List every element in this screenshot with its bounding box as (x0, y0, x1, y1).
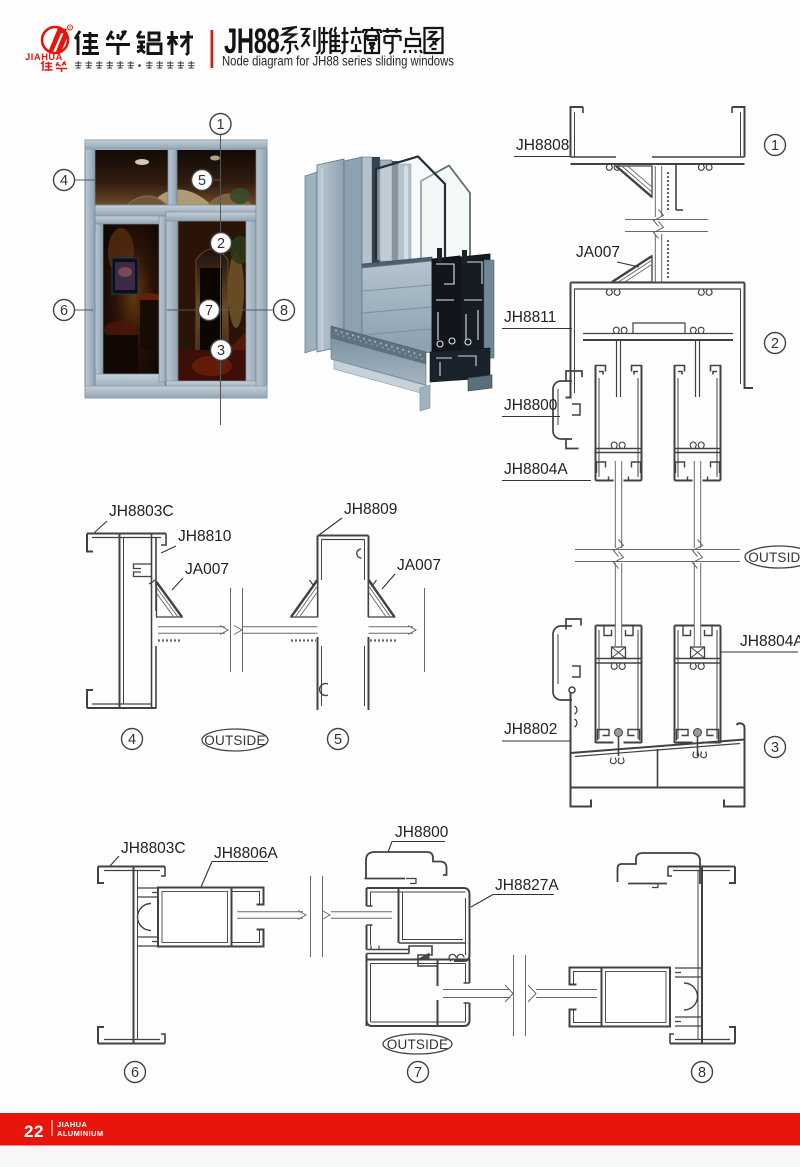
svg-text:4: 4 (60, 173, 68, 189)
svg-text:ALUMINIUM: ALUMINIUM (57, 1129, 104, 1138)
svg-text:22: 22 (24, 1122, 44, 1141)
svg-text:JH8802: JH8802 (504, 721, 557, 738)
svg-text:JH8800: JH8800 (504, 397, 558, 414)
svg-text:JH8827A: JH8827A (495, 877, 559, 894)
svg-text:JH8804A: JH8804A (504, 461, 568, 478)
svg-text:JH8806A: JH8806A (214, 845, 278, 862)
svg-text:OUTSIDE: OUTSIDE (748, 550, 800, 565)
svg-text:OUTSIDE: OUTSIDE (387, 1037, 448, 1052)
svg-text:R: R (68, 26, 71, 31)
svg-text:JIAHUA: JIAHUA (57, 1120, 88, 1129)
svg-text:JH8800: JH8800 (395, 824, 449, 841)
svg-text:5: 5 (198, 173, 206, 189)
svg-text:OUTSIDE: OUTSIDE (204, 733, 265, 748)
svg-text:JH8810: JH8810 (178, 528, 232, 545)
svg-text:JIAHUA: JIAHUA (25, 52, 63, 62)
svg-text:3: 3 (771, 740, 779, 756)
svg-text:5: 5 (334, 732, 342, 748)
svg-text:JH8809: JH8809 (344, 501, 397, 518)
svg-text:JH8808: JH8808 (516, 137, 569, 154)
svg-text:8: 8 (698, 1065, 706, 1081)
svg-text:JA007: JA007 (185, 561, 229, 578)
svg-text:JA007: JA007 (576, 244, 620, 261)
svg-text:3: 3 (217, 343, 225, 359)
svg-text:7: 7 (205, 303, 213, 319)
svg-text:JH8811: JH8811 (504, 309, 556, 326)
svg-text:JH8803C: JH8803C (109, 503, 174, 520)
svg-text:4: 4 (128, 732, 136, 748)
svg-text:JA007: JA007 (397, 557, 441, 574)
svg-text:1: 1 (771, 138, 779, 154)
svg-text:2: 2 (771, 336, 779, 352)
svg-text:JH8803C: JH8803C (121, 840, 186, 857)
svg-text:8: 8 (280, 303, 288, 319)
svg-text:6: 6 (131, 1065, 139, 1081)
svg-text:JH8804A: JH8804A (740, 633, 800, 650)
svg-text:2: 2 (217, 236, 225, 252)
svg-text:Node diagram for JH88 series s: Node diagram for JH88 series sliding win… (222, 53, 454, 68)
svg-text:1: 1 (216, 117, 224, 133)
svg-text:7: 7 (414, 1065, 422, 1081)
svg-text:6: 6 (60, 303, 68, 319)
